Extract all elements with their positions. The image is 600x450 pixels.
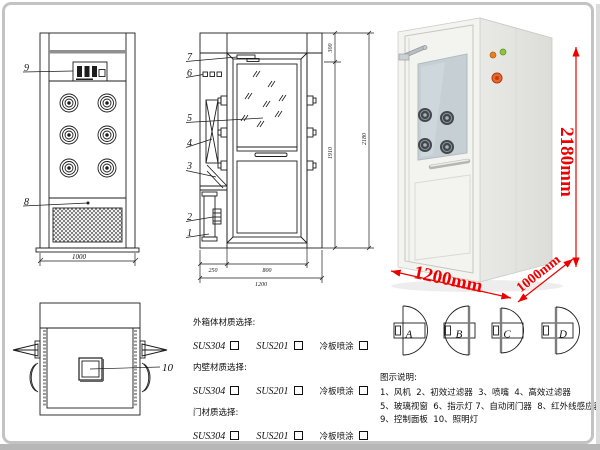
door-handle (255, 153, 287, 157)
top-view-drawing: 10 (10, 295, 200, 425)
legend-title: 图示说明: (380, 371, 598, 383)
dim-1910: 1910 (328, 147, 334, 159)
material-option-label: 冷板喷涂 (320, 387, 354, 397)
callout-8: 8 (24, 197, 29, 208)
coldplate-checkbox[interactable] (359, 386, 368, 395)
material-option-label: 冷板喷涂 (320, 432, 354, 442)
nozzle (60, 159, 78, 177)
height-dimensions: 300 1910 2180 (322, 31, 374, 250)
side-view-callouts: 7 6 5 4 3 2 1 (186, 52, 263, 239)
control-panel-detail (73, 62, 107, 81)
nozzle (98, 126, 116, 144)
material-group-label: 内壁材质选择: (193, 361, 379, 373)
callout-9: 9 (24, 63, 29, 74)
ceiling-lamp (79, 358, 103, 381)
dim-1000: 1000 (72, 253, 87, 261)
product-photo: 2180mm 1200mm 1000mm (385, 5, 595, 305)
door-hinges (13, 341, 167, 392)
air-grille (53, 208, 122, 242)
door-option-label: D (558, 329, 567, 341)
dim-250: 250 (209, 268, 218, 274)
door-swing-option-a[interactable]: A (392, 303, 430, 359)
coldplate-checkbox[interactable] (359, 341, 368, 350)
door-option-label: C (503, 329, 511, 341)
sus201-checkbox[interactable] (294, 431, 303, 440)
indicator-lights (203, 72, 222, 77)
door-option-label: A (405, 329, 413, 341)
door-closer (237, 55, 259, 62)
sus201-checkbox[interactable] (294, 341, 303, 350)
legend: 图示说明: 1、风机 2、初效过滤器 3、喷嘴 4、高效过滤器 5、玻璃视窗 6… (380, 371, 598, 428)
datasheet-page: 9 8 1000 (0, 0, 600, 450)
front-view-drawing: 9 8 1000 (20, 25, 160, 275)
material-option-label: SUS304 (193, 431, 225, 442)
material-group-inner-wall: 内壁材质选择: SUS304 SUS201 冷板喷涂 (193, 361, 379, 398)
side-elevation-drawing: 7 6 5 4 3 2 1 300 1910 2180 (183, 25, 383, 290)
coldplate-checkbox[interactable] (359, 431, 368, 440)
page-edge-right (596, 4, 600, 444)
side-cabinet (200, 33, 322, 248)
door-swing-option-b[interactable]: B (442, 303, 480, 359)
material-option-label: SUS304 (193, 341, 225, 352)
material-group-label: 门材质选择: (193, 406, 379, 418)
material-option-label: SUS201 (256, 341, 288, 352)
dim-800: 800 (263, 268, 272, 274)
indicator-light-green (500, 49, 506, 55)
material-option-label: SUS304 (193, 386, 225, 397)
dim-2180: 2180 (362, 133, 368, 145)
dim-2180mm: 2180mm (556, 127, 577, 197)
door-swing-option-d[interactable]: D (540, 303, 578, 359)
indicator-light-orange (490, 52, 496, 58)
nozzle (60, 94, 78, 112)
dim-1200: 1200 (255, 282, 267, 288)
nozzle (60, 126, 78, 144)
cabinet-3d (398, 18, 552, 282)
door-swing-option-c[interactable]: C (490, 303, 528, 359)
material-option-label: 冷板喷涂 (320, 342, 354, 352)
legend-line: 9、控制面板 10、照明灯 (380, 414, 598, 428)
legend-line: 1、风机 2、初效过滤器 3、喷嘴 4、高效过滤器 (380, 387, 598, 401)
sus304-checkbox[interactable] (230, 431, 239, 440)
door-swing-options: A B C D (388, 303, 588, 361)
front-view-callouts: 9 8 (23, 63, 90, 208)
nozzles-front (60, 94, 116, 177)
sus304-checkbox[interactable] (230, 341, 239, 350)
dim-300: 300 (328, 44, 334, 54)
legend-line: 5、玻璃视窗 6、指示灯 7、自动闭门器 8、红外线感应器 (380, 401, 598, 415)
material-option-label: SUS201 (256, 431, 288, 442)
spray-duct (200, 165, 227, 190)
material-group-door: 门材质选择: SUS304 SUS201 冷板喷涂 (193, 406, 379, 443)
nozzle (98, 94, 116, 112)
callout-4: 4 (187, 138, 192, 149)
top-view-body (13, 303, 167, 415)
page-edge-bottom (0, 444, 600, 450)
sus304-checkbox[interactable] (230, 386, 239, 395)
material-option-label: SUS201 (256, 386, 288, 397)
front-width-dimension: 1000 (38, 253, 138, 266)
material-selection: 外箱体材质选择: SUS304 SUS201 冷板喷涂 内壁材质选择: SUS3… (193, 316, 379, 450)
hepa-filter (206, 100, 218, 163)
door-option-label: B (456, 329, 463, 341)
material-group-label: 外箱体材质选择: (193, 316, 379, 328)
nozzle (98, 159, 116, 177)
sus201-checkbox[interactable] (294, 386, 303, 395)
width-dimensions: 250 800 1200 (198, 248, 324, 288)
callout-10: 10 (162, 362, 174, 374)
material-group-outer-box: 外箱体材质选择: SUS304 SUS201 冷板喷涂 (193, 316, 379, 353)
fan-blower (202, 192, 221, 241)
